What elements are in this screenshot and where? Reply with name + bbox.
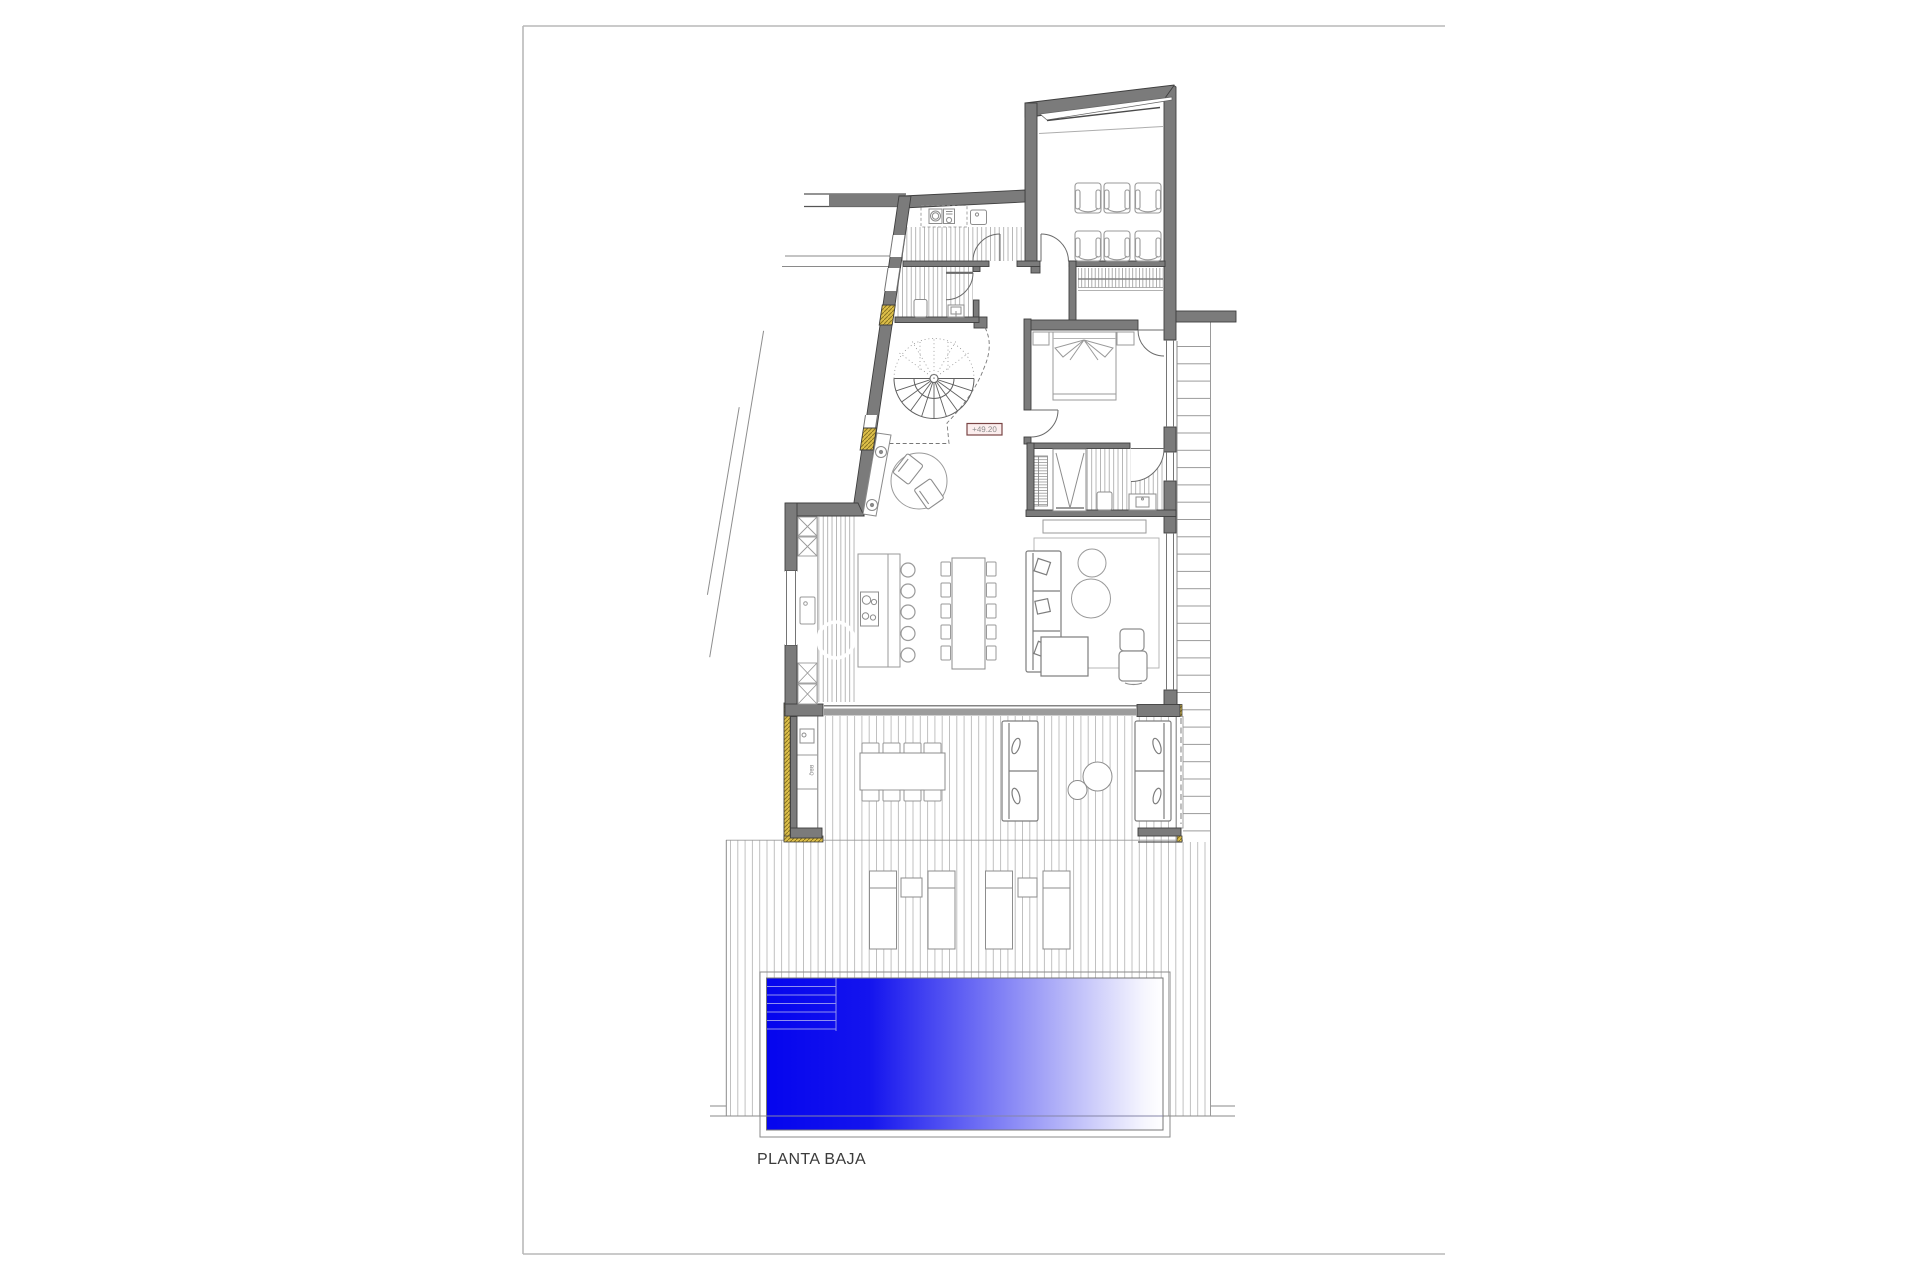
svg-text:BBQ: BBQ — [808, 765, 814, 776]
svg-text:PLANTA BAJA: PLANTA BAJA — [757, 1151, 866, 1168]
svg-text:+49.20: +49.20 — [972, 425, 997, 434]
